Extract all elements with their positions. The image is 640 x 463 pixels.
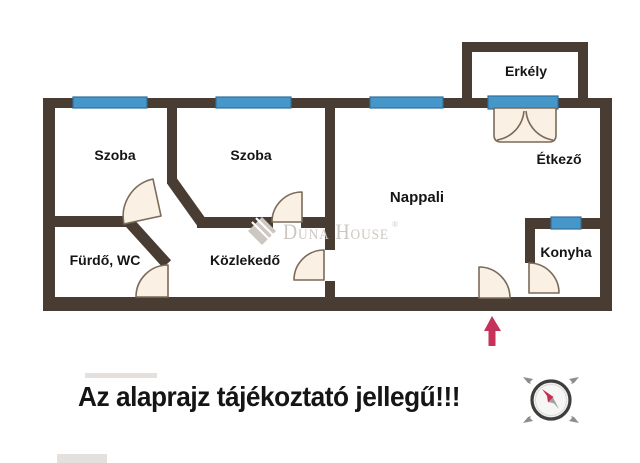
- door-swing-szoba1: [123, 179, 161, 224]
- room-label-konyha: Konyha: [540, 244, 592, 260]
- door-swing-kozlekedo-nappali: [294, 250, 324, 280]
- door-swing-konyha: [529, 263, 559, 293]
- wall-left: [43, 98, 55, 311]
- door-swing-entrance: [479, 267, 510, 298]
- room-label-szoba2: Szoba: [230, 147, 271, 163]
- wall-balcony-top: [462, 42, 588, 52]
- room-label-nappali: Nappali: [390, 189, 444, 206]
- window-szoba1: [73, 97, 147, 108]
- room-label-furdo-wc: Fürdő, WC: [70, 252, 141, 268]
- wall-szoba-divider: [167, 106, 177, 184]
- floorplan-canvas: Duna House ® Szoba Szoba Nappali Erkély …: [0, 0, 640, 463]
- entrance-arrow-icon: [484, 316, 501, 346]
- window-szoba2: [216, 97, 291, 108]
- room-label-szoba1: Szoba: [94, 147, 135, 163]
- wall-konyha-left: [525, 228, 535, 263]
- wall-furdo-top: [43, 216, 133, 227]
- floorplan-page: Duna House ® Szoba Szoba Nappali Erkély …: [0, 0, 640, 463]
- wall-balcony-right: [578, 42, 588, 100]
- compass-point-sw: [523, 416, 533, 423]
- watermark-fragment: [85, 373, 157, 378]
- watermark-fragment: [57, 454, 107, 463]
- door-balcony-double: [494, 108, 556, 142]
- room-label-etkezo: Étkező: [536, 151, 581, 167]
- brand-watermark-text: Duna House: [283, 219, 389, 244]
- window-konyha: [551, 217, 581, 229]
- room-label-erkely: Erkély: [505, 63, 547, 79]
- wall-right: [600, 98, 612, 311]
- window-nappali: [370, 97, 443, 108]
- window-balcony-door: [488, 96, 558, 109]
- compass-point-nw: [523, 377, 533, 384]
- room-label-kozlekedo: Közlekedő: [210, 252, 280, 268]
- compass-point-ne: [569, 377, 579, 384]
- door-swing-szoba2: [272, 192, 302, 222]
- compass-point-se: [569, 416, 579, 423]
- compass-icon: [523, 377, 579, 423]
- door-swing-furdo: [136, 265, 168, 297]
- wall-nappali-divider-lower: [325, 281, 335, 299]
- walls: [43, 42, 612, 311]
- wall-bottom: [43, 297, 612, 311]
- disclaimer-text: Az alaprajz tájékoztató jellegű!!!: [78, 381, 460, 412]
- wall-diagonal-szoba2: [172, 181, 202, 223]
- registered-mark: ®: [392, 220, 398, 229]
